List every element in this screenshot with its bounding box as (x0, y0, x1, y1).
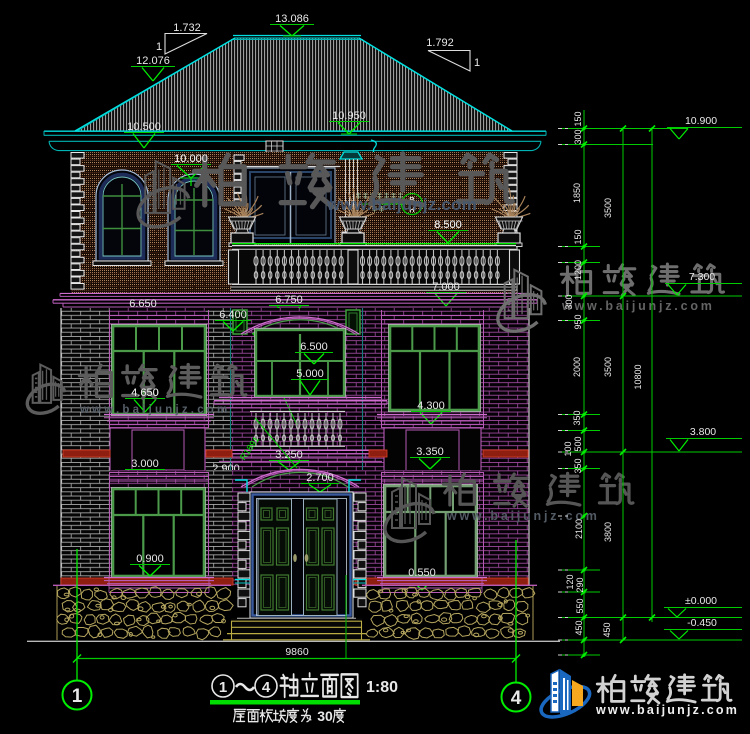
svg-text:4: 4 (511, 688, 522, 709)
svg-text:950: 950 (573, 314, 583, 329)
svg-text:3.800: 3.800 (690, 426, 716, 438)
svg-text:4.300: 4.300 (417, 400, 445, 412)
svg-text:3.000: 3.000 (131, 458, 159, 470)
svg-text:www.baijunjz.com: www.baijunjz.com (79, 404, 230, 416)
svg-text:300: 300 (573, 129, 583, 144)
svg-text:2100: 2100 (574, 519, 584, 539)
svg-text:12.076: 12.076 (136, 55, 170, 67)
svg-text:6.500: 6.500 (300, 341, 328, 353)
svg-text:10.000: 10.000 (174, 153, 208, 165)
svg-text:3.350: 3.350 (416, 446, 444, 458)
svg-text:10.950: 10.950 (332, 110, 366, 122)
svg-text:2.700: 2.700 (306, 472, 334, 484)
svg-text:0.900: 0.900 (136, 553, 164, 565)
svg-text:9860: 9860 (285, 646, 309, 658)
svg-text:450: 450 (574, 620, 584, 635)
svg-text:300: 300 (564, 294, 574, 309)
svg-text:6.750: 6.750 (275, 294, 303, 306)
svg-text:-0.450: -0.450 (687, 617, 717, 629)
svg-text:1: 1 (474, 57, 480, 69)
svg-text:1: 1 (219, 679, 227, 696)
svg-text:4: 4 (262, 679, 271, 696)
svg-text:290: 290 (575, 577, 585, 592)
svg-text:120: 120 (565, 574, 575, 589)
svg-text:7.000: 7.000 (432, 281, 460, 293)
svg-text:1: 1 (156, 41, 162, 53)
svg-text:3500: 3500 (603, 198, 613, 218)
svg-text:450: 450 (602, 622, 612, 637)
svg-text:500: 500 (573, 436, 583, 451)
svg-text:8.500: 8.500 (434, 219, 462, 231)
svg-text:±0.000: ±0.000 (685, 595, 717, 607)
svg-text:3800: 3800 (603, 522, 613, 542)
svg-text:1200: 1200 (573, 260, 583, 280)
svg-text:www.baijunjz.com: www.baijunjz.com (595, 703, 739, 717)
svg-text:7.300: 7.300 (689, 271, 715, 283)
svg-text:100: 100 (563, 441, 573, 456)
svg-text:5.000: 5.000 (296, 368, 324, 380)
svg-text:1.732: 1.732 (173, 22, 201, 34)
svg-text:2000: 2000 (572, 357, 582, 377)
svg-text:3500: 3500 (603, 357, 613, 377)
svg-text:4.650: 4.650 (131, 387, 159, 399)
svg-text:13.086: 13.086 (275, 13, 309, 25)
svg-text:550: 550 (575, 598, 585, 613)
svg-text:6.400: 6.400 (219, 309, 247, 321)
svg-text:10.500: 10.500 (127, 121, 161, 133)
svg-text:1:80: 1:80 (366, 679, 398, 696)
svg-text:1850: 1850 (572, 183, 582, 203)
svg-text:1: 1 (72, 686, 83, 707)
svg-text:350: 350 (573, 458, 583, 473)
svg-text:30: 30 (317, 708, 333, 724)
svg-text:350: 350 (572, 410, 582, 425)
svg-text:150: 150 (573, 111, 583, 126)
svg-text:10800: 10800 (633, 364, 643, 389)
svg-text:1.792: 1.792 (426, 37, 454, 49)
svg-text:10.900: 10.900 (685, 115, 717, 127)
svg-text:150: 150 (573, 229, 583, 244)
svg-text:www.baijunjz.com: www.baijunjz.com (326, 195, 477, 214)
